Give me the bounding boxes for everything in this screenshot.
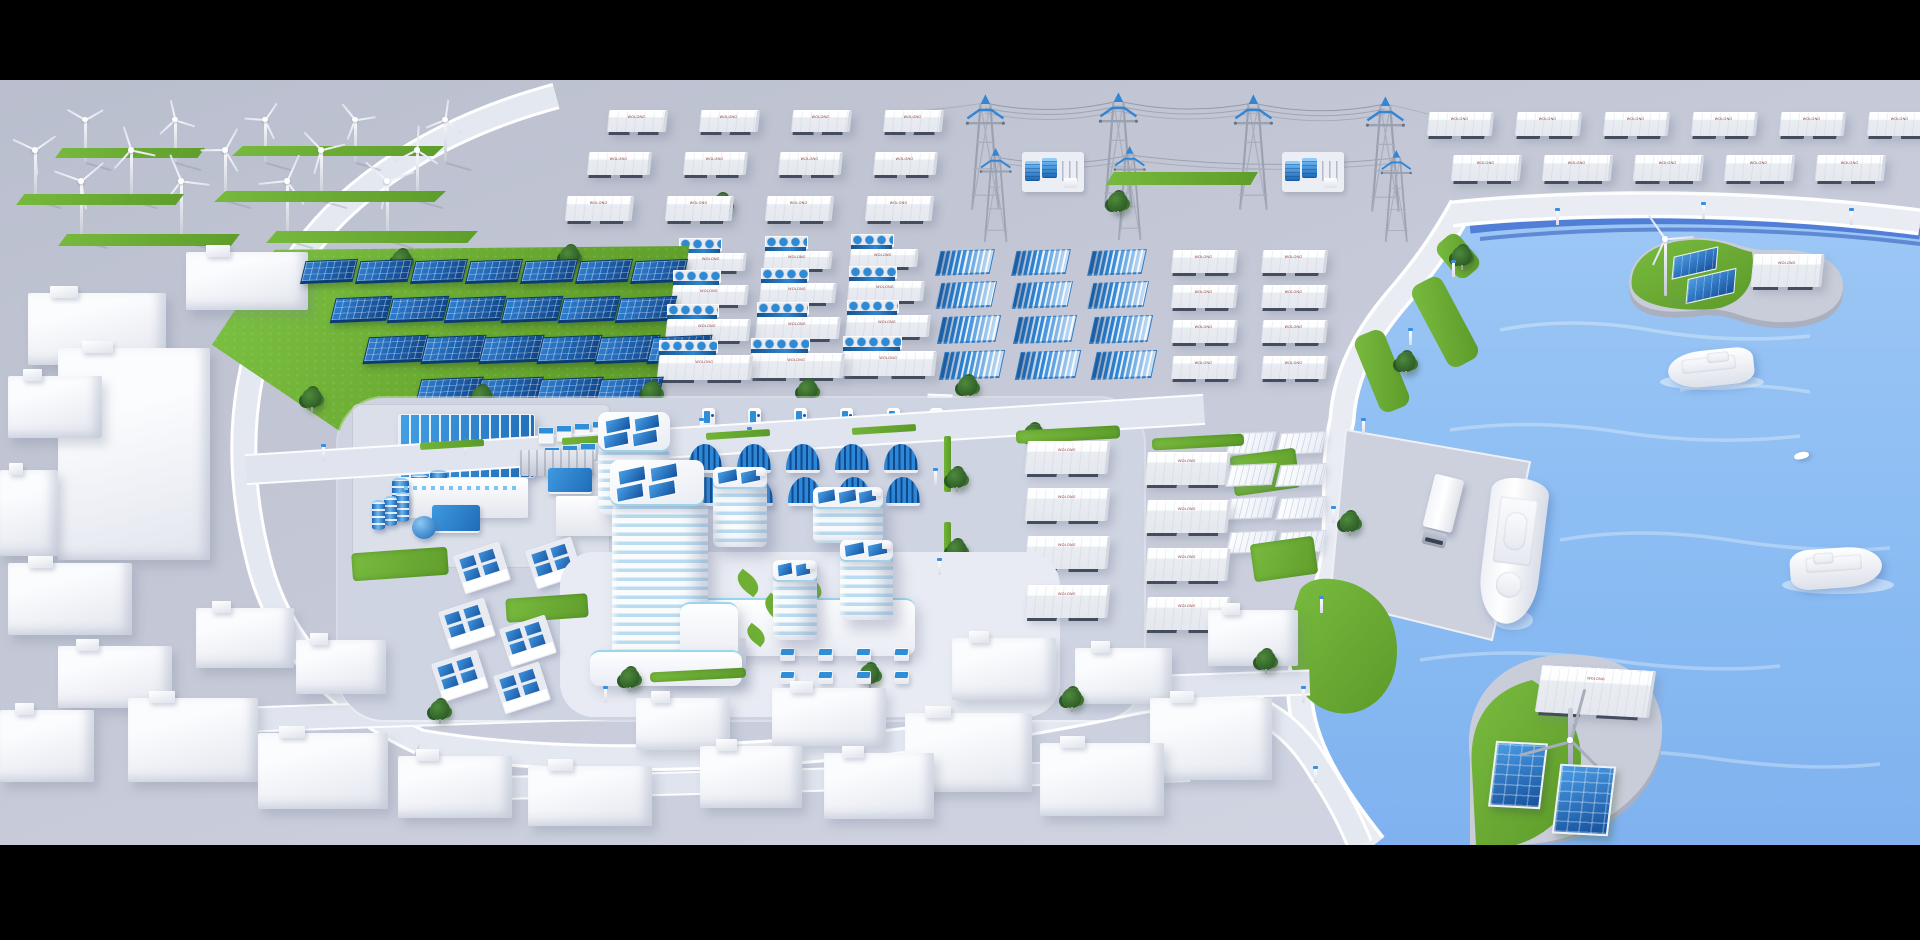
charging-plaza-station <box>818 671 833 684</box>
block-body <box>840 552 893 620</box>
city-building <box>8 563 132 635</box>
storage-container: WOLONG <box>1024 441 1110 474</box>
transformer <box>1025 161 1040 181</box>
wind-farm-grass-strip <box>214 191 446 202</box>
storage-container: WOLONG <box>665 196 735 221</box>
container-label: WOLONG <box>883 158 927 162</box>
rooftop-box <box>28 556 53 568</box>
gradient-pv-array <box>1011 281 1073 309</box>
container-label: WOLONG <box>616 115 657 119</box>
container-label: WOLONG <box>1158 507 1216 511</box>
turbine-hub <box>82 117 88 123</box>
wind-turbine <box>176 180 186 240</box>
storage-container: WOLONG <box>1024 488 1110 521</box>
solar-panel <box>536 335 602 365</box>
rooftop-box <box>1091 641 1110 653</box>
tree <box>1452 246 1472 266</box>
substation <box>1282 152 1344 192</box>
storage-container: WOLONG <box>1261 320 1328 343</box>
turbine-hub <box>128 147 134 153</box>
city-building <box>0 710 94 782</box>
charging-plaza-station <box>894 671 909 684</box>
city-building <box>772 688 886 746</box>
bess-container: WOLONG <box>841 351 938 376</box>
gradient-pv-array <box>1087 249 1147 276</box>
bess-container: WOLONG <box>847 281 925 301</box>
street-lamp <box>1302 688 1305 703</box>
container-label: WOLONG <box>1038 592 1096 596</box>
tree <box>1062 688 1082 708</box>
rooftop-box <box>548 759 573 771</box>
container-label: WOLONG <box>1181 362 1226 366</box>
rooftop-box <box>756 469 765 476</box>
container-label: WOLONG <box>858 286 911 290</box>
solar-panel <box>444 296 507 323</box>
turbine-hub <box>222 147 228 153</box>
wind-turbine <box>440 119 450 162</box>
storage-container: WOLONG <box>587 152 652 175</box>
bess-container: WOLONG <box>755 317 841 339</box>
container-label: WOLONG <box>1158 555 1216 559</box>
container-label: WOLONG <box>671 361 737 365</box>
turbine-hub <box>32 147 38 153</box>
tree <box>430 700 450 720</box>
city-building <box>8 376 102 438</box>
storage-container: WOLONG <box>1171 320 1238 343</box>
city-building <box>186 252 308 310</box>
storage-container: WOLONG <box>1171 250 1238 273</box>
white-pv-array <box>1225 463 1277 487</box>
harbor-ship <box>1789 545 1884 591</box>
container-label: WOLONG <box>855 357 921 361</box>
ship-cabin <box>1813 552 1834 564</box>
hq-tower-group <box>590 412 750 702</box>
container-label: WOLONG <box>1556 676 1637 684</box>
container-label: WOLONG <box>1158 604 1216 608</box>
white-pv-array <box>1275 463 1327 487</box>
gradient-pv-array <box>935 249 995 276</box>
street-lamp <box>934 470 937 485</box>
rooftop-box <box>212 601 232 613</box>
charging-plaza-station <box>818 648 833 661</box>
container-label: WOLONG <box>1789 118 1834 122</box>
tree <box>1340 512 1360 532</box>
container-label: WOLONG <box>1613 118 1658 122</box>
tree <box>620 668 640 688</box>
bess-container: WOLONG <box>671 285 749 305</box>
rooftop-box <box>23 369 42 381</box>
storage-container: WOLONG <box>791 110 852 132</box>
tree <box>1108 192 1128 212</box>
container-label: WOLONG <box>859 254 906 258</box>
container-label: WOLONG <box>768 322 827 326</box>
bess-unit: WOLONG <box>846 300 930 338</box>
city-building <box>128 698 258 782</box>
city-building <box>196 608 294 668</box>
gradient-pv-array <box>1013 315 1077 344</box>
rooftop-box <box>50 286 78 298</box>
street-lamp <box>1850 210 1853 225</box>
storage-container: WOLONG <box>1515 112 1583 136</box>
rooftop-box <box>76 639 99 651</box>
container-label: WOLONG <box>693 158 737 162</box>
container-label: WOLONG <box>1437 118 1482 122</box>
turbine-hub <box>1567 737 1573 743</box>
container-label: WOLONG <box>1271 256 1316 260</box>
office-block <box>773 560 817 640</box>
bess-unit: WOLONG <box>842 336 936 378</box>
bess-container: WOLONG <box>749 353 846 378</box>
container-label: WOLONG <box>892 115 933 119</box>
rooftop-box <box>149 691 175 703</box>
bess-container: WOLONG <box>763 251 833 269</box>
transformer <box>1285 161 1300 181</box>
turbine-hub <box>318 147 324 153</box>
storage-container: WOLONG <box>683 152 748 175</box>
rooftop-box <box>716 739 736 751</box>
solar-panel <box>420 335 486 365</box>
gradient-pv-array <box>935 281 997 309</box>
turbine-mast <box>1664 238 1667 296</box>
street-lamp <box>604 688 607 703</box>
solar-panel <box>575 259 633 284</box>
container-label: WOLONG <box>708 115 749 119</box>
container-label: WOLONG <box>1038 495 1096 499</box>
container-label: WOLONG <box>1181 326 1226 330</box>
white-pv-array <box>1275 496 1327 520</box>
storage-container: WOLONG <box>1144 452 1230 485</box>
container-label: WOLONG <box>1735 161 1783 165</box>
storage-container: WOLONG <box>778 152 843 175</box>
bess-container: WOLONG <box>845 315 931 337</box>
street-lamp <box>1702 204 1705 219</box>
bess-unit: WOLONG <box>760 268 836 302</box>
storage-container: WOLONG <box>1261 250 1328 273</box>
container-label: WOLONG <box>1553 161 1601 165</box>
turbine-hub <box>352 117 358 123</box>
container-label: WOLONG <box>575 202 621 206</box>
pylon-svg <box>1380 148 1413 244</box>
solar-panel <box>362 335 428 365</box>
container-label: WOLONG <box>775 202 821 206</box>
solar-panel <box>520 259 578 284</box>
tree <box>798 380 818 400</box>
blue-canopy <box>432 505 480 533</box>
rooftop-box <box>9 463 23 475</box>
bess-unit: WOLONG <box>658 340 752 382</box>
rooftop-box <box>310 633 328 645</box>
rooftop-box <box>882 542 891 549</box>
gradient-pv-array <box>1089 315 1153 344</box>
wind-turbine <box>30 149 40 200</box>
city-building <box>258 733 388 809</box>
storage-container: WOLONG <box>1750 254 1824 287</box>
bess-container: WOLONG <box>759 283 837 303</box>
container-label: WOLONG <box>875 202 921 206</box>
wind-turbine <box>76 180 86 240</box>
street-lamp <box>1409 330 1412 345</box>
street-lamp <box>1332 508 1335 523</box>
container-label: WOLONG <box>773 256 820 260</box>
turbine-hub <box>1662 236 1668 242</box>
wind-turbine <box>126 149 136 200</box>
storage-container: WOLONG <box>699 110 760 132</box>
factory-windows <box>404 486 516 490</box>
storage-container: WOLONG <box>865 196 935 221</box>
solar-panel <box>558 296 621 323</box>
rooftop-box <box>279 726 305 738</box>
storage-container: WOLONG <box>1144 500 1230 533</box>
rooftop-box <box>416 749 439 761</box>
pylon-svg <box>979 146 1012 244</box>
bess-unit: WOLONG <box>750 338 844 380</box>
charging-plaza-station <box>894 648 909 661</box>
storage-container: WOLONG <box>1633 155 1705 181</box>
bess-unit: WOLONG <box>848 266 924 300</box>
tree <box>947 468 967 488</box>
container-label: WOLONG <box>1877 118 1920 122</box>
island-wind-turbine <box>1660 238 1670 296</box>
block-body <box>773 572 817 640</box>
container-label: WOLONG <box>858 320 917 324</box>
storage-container: WOLONG <box>565 196 635 221</box>
transformer <box>1042 158 1057 178</box>
transmission-pylon <box>979 146 1012 244</box>
street-lamp <box>1362 420 1365 435</box>
wind-farm-grass-strip <box>266 231 478 243</box>
solar-panel <box>387 296 450 323</box>
tree <box>302 388 322 408</box>
switchgear-box <box>1064 178 1077 188</box>
storage-container: WOLONG <box>873 152 938 175</box>
rooftop-box <box>790 681 813 693</box>
bess-unit: WOLONG <box>764 236 832 267</box>
rooftop-box <box>82 341 112 353</box>
pylon-grass-strip <box>1106 172 1258 185</box>
storage-container: WOLONG <box>765 196 835 221</box>
charging-plaza-station <box>780 648 795 661</box>
container-label: WOLONG <box>1525 118 1570 122</box>
gradient-pv-array <box>1091 350 1157 380</box>
island-solar-panel <box>1552 764 1616 837</box>
container-label: WOLONG <box>1271 291 1316 295</box>
container-label: WOLONG <box>1181 256 1226 260</box>
letterbox-top <box>0 0 1920 80</box>
rooftop-box <box>1170 691 1194 703</box>
render-stage: WOLONGWOLONGWOLONGWOLONGWOLONGWOLONGWOLO… <box>0 0 1920 940</box>
city-building <box>1208 610 1298 666</box>
energy-city-scene: WOLONGWOLONGWOLONGWOLONGWOLONGWOLONGWOLO… <box>0 0 1920 940</box>
bess-container: WOLONG <box>849 249 919 267</box>
storage-container: WOLONG <box>607 110 668 132</box>
storage-container: WOLONG <box>1603 112 1671 136</box>
container-label: WOLONG <box>1826 161 1874 165</box>
solar-panel <box>465 259 523 284</box>
street-lamp <box>1320 598 1323 613</box>
street-lamp <box>1314 768 1317 783</box>
storage-container: WOLONG <box>1451 155 1523 181</box>
bess-unit: WOLONG <box>850 234 918 265</box>
storage-container: WOLONG <box>1779 112 1847 136</box>
charging-plaza-station <box>856 648 871 661</box>
charging-plaza-station <box>856 671 871 684</box>
rooftop-box <box>969 631 990 643</box>
blue-canopy <box>548 468 592 494</box>
storage-container: WOLONG <box>1815 155 1887 181</box>
city-building <box>700 746 802 808</box>
tree <box>958 376 978 396</box>
city-building <box>296 640 386 694</box>
container-label: WOLONG <box>1038 543 1096 547</box>
container-label: WOLONG <box>1271 362 1316 366</box>
container-label: WOLONG <box>1158 459 1216 463</box>
city-building <box>398 756 512 818</box>
turbine-hub <box>384 178 390 184</box>
storage-container: WOLONG <box>1144 548 1230 581</box>
storage-container: WOLONG <box>1724 155 1796 181</box>
office-block <box>813 487 883 543</box>
storage-tank-small <box>372 500 385 530</box>
container-label: WOLONG <box>1762 261 1811 265</box>
rooftop-box <box>1060 736 1085 748</box>
container-label: WOLONG <box>1462 161 1510 165</box>
rooftop-box <box>806 562 815 569</box>
solar-panel <box>410 259 468 284</box>
turbine-hub <box>178 178 184 184</box>
container-label: WOLONG <box>1038 448 1096 452</box>
container-label: WOLONG <box>675 202 721 206</box>
rooftop-box <box>842 746 864 758</box>
white-pv-array <box>1225 496 1277 520</box>
letterbox-bottom <box>0 845 1920 940</box>
tree <box>1256 650 1276 670</box>
rooftop-box <box>1222 603 1240 615</box>
rooftop-box <box>925 706 950 718</box>
office-block <box>840 540 893 620</box>
sphere-tank <box>412 516 436 539</box>
city-building <box>952 638 1056 700</box>
bess-container: WOLONG <box>657 355 754 380</box>
wind-farm-grass-strip <box>16 194 184 205</box>
storage-container: WOLONG <box>1261 285 1328 308</box>
pylon-svg <box>1233 92 1274 212</box>
transformer <box>1302 158 1317 178</box>
gradient-pv-array <box>1015 350 1081 380</box>
tree <box>1396 352 1416 372</box>
storage-container: WOLONG <box>1171 356 1238 379</box>
rooftop-box <box>872 489 881 496</box>
container-label: WOLONG <box>800 115 841 119</box>
city-building <box>0 470 58 556</box>
gradient-pv-array <box>939 350 1005 380</box>
switchgear-box <box>1324 178 1337 188</box>
solar-panel <box>330 296 393 323</box>
street-lamp <box>1556 210 1559 225</box>
container-label: WOLONG <box>678 324 737 328</box>
turbine-hub <box>414 147 420 153</box>
container-label: WOLONG <box>687 258 734 262</box>
turbine-hub <box>284 178 290 184</box>
turbine-mast <box>444 119 447 162</box>
turbine-mast <box>130 149 133 200</box>
cooling-unit <box>538 427 554 444</box>
container-label: WOLONG <box>763 359 829 363</box>
solar-panel <box>478 335 544 365</box>
container-label: WOLONG <box>1644 161 1692 165</box>
container-label: WOLONG <box>1271 326 1316 330</box>
city-building <box>1040 743 1164 816</box>
storage-tank-small <box>396 492 409 522</box>
rooftop-box <box>15 703 34 715</box>
solar-panel <box>501 296 564 323</box>
city-building <box>1150 698 1272 780</box>
turbine-hub <box>78 178 84 184</box>
container-label: WOLONG <box>1701 118 1746 122</box>
gradient-pv-array <box>1011 249 1071 276</box>
storage-container: WOLONG <box>1542 155 1614 181</box>
storage-container: WOLONG <box>883 110 944 132</box>
container-label: WOLONG <box>770 288 823 292</box>
storage-container: WOLONG <box>1261 356 1328 379</box>
storage-container: WOLONG <box>1024 585 1110 618</box>
gradient-pv-array <box>1087 281 1149 309</box>
city-building <box>824 753 934 819</box>
bess-unit: WOLONG <box>756 302 840 340</box>
storage-tank-small <box>384 496 397 526</box>
street-lamp <box>1452 262 1455 277</box>
bess-unit: WOLONG <box>672 270 748 304</box>
gradient-pv-array <box>937 315 1001 344</box>
street-lamp <box>322 446 325 461</box>
rooftop-box <box>206 245 230 257</box>
turbine-mast <box>180 180 183 240</box>
storage-container: WOLONG <box>1691 112 1759 136</box>
rooftop-box <box>651 691 670 703</box>
transmission-pylon <box>1233 92 1274 212</box>
container-label: WOLONG <box>597 158 641 162</box>
container-label: WOLONG <box>1181 291 1226 295</box>
street-lamp <box>938 560 941 575</box>
container-label: WOLONG <box>682 290 735 294</box>
container-label: WOLONG <box>788 158 832 162</box>
storage-container: WOLONG <box>1427 112 1495 136</box>
solar-panel <box>355 259 413 284</box>
storage-container: WOLONG <box>1867 112 1920 136</box>
storage-container: WOLONG <box>1171 285 1238 308</box>
city-building <box>1075 648 1172 704</box>
substation <box>1022 152 1084 192</box>
transmission-pylon <box>1380 148 1413 244</box>
solar-panel <box>300 259 358 284</box>
city-building <box>528 766 652 826</box>
